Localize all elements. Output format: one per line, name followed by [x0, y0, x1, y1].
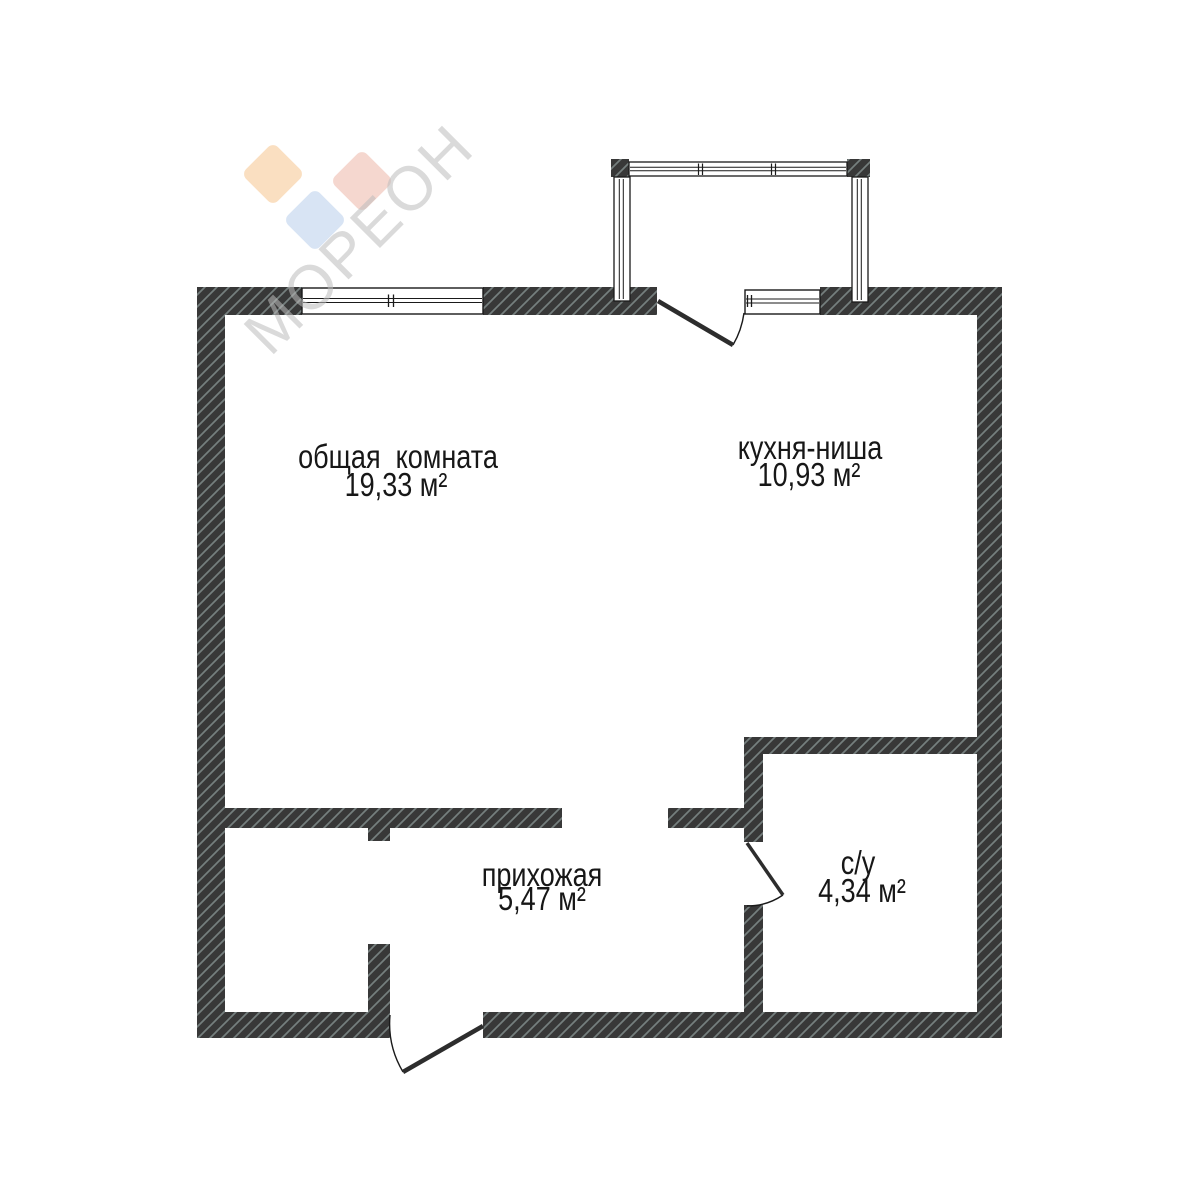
label-living-room-area: 19,33 м²	[345, 468, 448, 504]
label-kitchen-area: 10,93 м²	[758, 458, 861, 494]
wall-bottom-right-segment	[483, 1012, 1002, 1038]
balcony-right-frame	[852, 177, 868, 302]
wall-bathroom-left-lower	[744, 905, 763, 1012]
wall-right-outer	[977, 287, 1002, 1038]
wall-bathroom-top	[744, 737, 977, 754]
wall-closet-stub	[368, 944, 390, 1012]
wall-bottom-left-segment	[197, 1012, 390, 1038]
wall-closet-notch	[368, 828, 390, 841]
balcony-corner-block-right	[847, 159, 870, 177]
window-kitchen	[745, 290, 820, 314]
balcony-corner-block-left	[611, 159, 629, 177]
wall-hallway-top-left	[225, 808, 562, 828]
window-kitchen-frame	[745, 290, 820, 314]
balcony-glazing-left	[614, 177, 630, 301]
balcony-top-frame	[629, 162, 847, 176]
floorplan-page: общая комната 19,33 м² кухня-ниша 10,93 …	[0, 0, 1200, 1200]
balcony-glazing-right	[852, 177, 868, 302]
balcony-glazing-top	[629, 162, 847, 176]
floorplan-drawing: общая комната 19,33 м² кухня-ниша 10,93 …	[0, 0, 1200, 1200]
label-hallway-area: 5,47 м²	[498, 882, 586, 918]
wall-hallway-top-right	[668, 808, 744, 828]
wall-top-middle-segment	[483, 287, 657, 315]
wall-left-outer	[197, 287, 225, 1038]
wall-top-right-segment	[820, 287, 1002, 315]
balcony-left-frame	[614, 177, 630, 301]
label-bathroom-area: 4,34 м²	[818, 874, 906, 910]
